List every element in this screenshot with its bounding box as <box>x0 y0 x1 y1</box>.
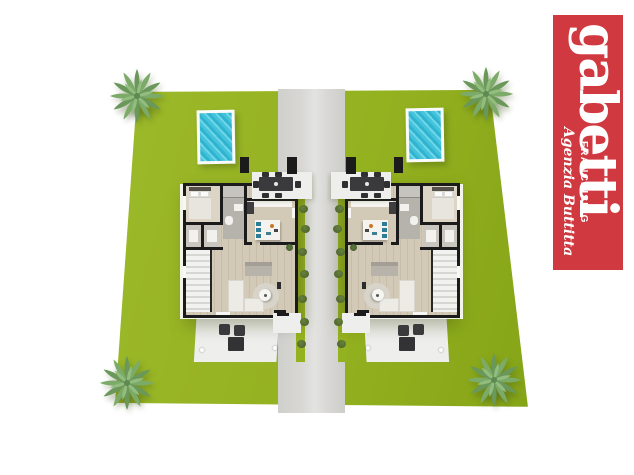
palm-tree-icon <box>98 354 156 412</box>
fridge <box>389 202 396 214</box>
patio-spotlight <box>273 346 277 350</box>
property-render: gabetti FRANCHISING Agenzia Buttitta <box>0 0 634 475</box>
sectional-sofa <box>228 280 244 312</box>
bowl <box>369 224 373 228</box>
dining-chair <box>295 181 301 188</box>
dining-chair <box>384 181 390 188</box>
palm-tree-icon <box>108 67 166 125</box>
bush <box>336 248 345 256</box>
bush <box>300 270 309 278</box>
bar-stool <box>256 228 261 232</box>
countertop-item <box>266 232 271 235</box>
entry-porch <box>273 313 301 333</box>
window <box>183 266 186 278</box>
sink <box>400 204 409 211</box>
floor-lamp <box>362 282 366 289</box>
patio-spotlight <box>439 348 443 352</box>
bush <box>300 318 309 326</box>
stair-rail <box>431 250 433 312</box>
patio-table <box>399 337 415 351</box>
wall <box>201 225 204 247</box>
stair-rail <box>210 250 212 312</box>
bowl <box>270 224 274 228</box>
bush <box>298 248 307 256</box>
bed <box>189 197 211 219</box>
shower <box>399 186 420 198</box>
kitchen-cabinets <box>351 201 393 207</box>
dining-chair <box>253 181 259 188</box>
fixture <box>189 230 198 242</box>
fixture <box>426 230 436 242</box>
houseplant <box>350 244 357 251</box>
dining-chair <box>275 172 282 177</box>
fixture <box>207 230 217 242</box>
dining-chair <box>262 172 269 177</box>
sectional-sofa <box>399 280 415 312</box>
floor-plan <box>345 183 460 318</box>
table-centerpiece <box>274 182 278 186</box>
wall <box>391 242 399 245</box>
bush <box>335 205 344 213</box>
countertop-item <box>372 232 377 235</box>
bush <box>299 205 308 213</box>
window <box>292 208 295 218</box>
kitchen-cabinets <box>250 201 292 207</box>
dining-chair <box>361 172 368 177</box>
bush <box>334 270 343 278</box>
sink <box>234 204 243 211</box>
entry-porch <box>342 313 370 333</box>
gabetti-banner: gabetti FRANCHISING Agenzia Buttitta <box>553 15 623 270</box>
dining-chair <box>374 172 381 177</box>
bush <box>298 295 307 303</box>
banner-ribbon: gabetti FRANCHISING Agenzia Buttitta <box>553 15 623 270</box>
wall <box>420 186 423 222</box>
patio-spotlight <box>366 346 370 350</box>
bush <box>337 340 346 348</box>
bush <box>297 340 306 348</box>
dining-chair <box>361 193 368 198</box>
loveseat-sofa <box>245 262 272 276</box>
wall <box>439 225 442 247</box>
countertop-item <box>274 229 278 232</box>
bush <box>333 225 342 233</box>
franchising-label: FRANCHISING <box>578 141 589 224</box>
patio-spotlight <box>200 348 204 352</box>
sectional-sofa <box>379 298 399 312</box>
bush <box>334 318 343 326</box>
bar-stool <box>382 228 387 232</box>
table-decor <box>376 294 379 297</box>
table-decor <box>264 294 267 297</box>
wall <box>244 242 252 245</box>
bush <box>336 295 345 303</box>
table-centerpiece <box>365 182 369 186</box>
dining-chair <box>374 193 381 198</box>
loveseat-sofa <box>371 262 398 276</box>
pool-water <box>200 113 233 162</box>
patio-chair <box>234 325 245 336</box>
bar-stool <box>382 234 387 238</box>
wall <box>396 186 399 242</box>
dining-chair <box>342 181 348 188</box>
chimney <box>394 157 403 173</box>
countertop-item <box>365 229 369 232</box>
house-right <box>330 155 460 365</box>
house-left <box>183 155 313 365</box>
patio-table <box>228 337 244 351</box>
fixture <box>445 230 454 242</box>
staircase <box>186 250 210 312</box>
palm-tree-icon <box>465 351 523 409</box>
patio-chair <box>219 324 230 335</box>
fridge <box>247 202 254 214</box>
bush <box>301 225 310 233</box>
front-door <box>354 313 366 316</box>
patio-chair <box>413 324 424 335</box>
agency-name: Agenzia Buttitta <box>560 127 576 256</box>
bar-stool <box>382 222 387 226</box>
dining-chair <box>262 193 269 198</box>
palm-tree-icon <box>457 65 515 123</box>
window <box>413 312 427 315</box>
staircase <box>433 250 457 312</box>
chimney <box>240 157 249 173</box>
front-door <box>277 313 289 316</box>
floor-plan <box>183 183 298 318</box>
window <box>457 266 460 278</box>
dining-chair <box>275 193 282 198</box>
pillar <box>346 157 356 174</box>
window <box>216 312 230 315</box>
window <box>457 196 460 210</box>
floor-lamp <box>277 282 281 289</box>
pool-water <box>409 111 442 160</box>
window <box>183 196 186 210</box>
pillar <box>287 157 297 174</box>
toilet <box>410 216 418 225</box>
window <box>348 208 351 218</box>
toilet <box>225 216 233 225</box>
bar-stool <box>256 234 261 238</box>
bar-stool <box>256 222 261 226</box>
patio-chair <box>398 325 409 336</box>
shower <box>223 186 244 198</box>
houseplant <box>286 244 293 251</box>
bed <box>432 197 454 219</box>
